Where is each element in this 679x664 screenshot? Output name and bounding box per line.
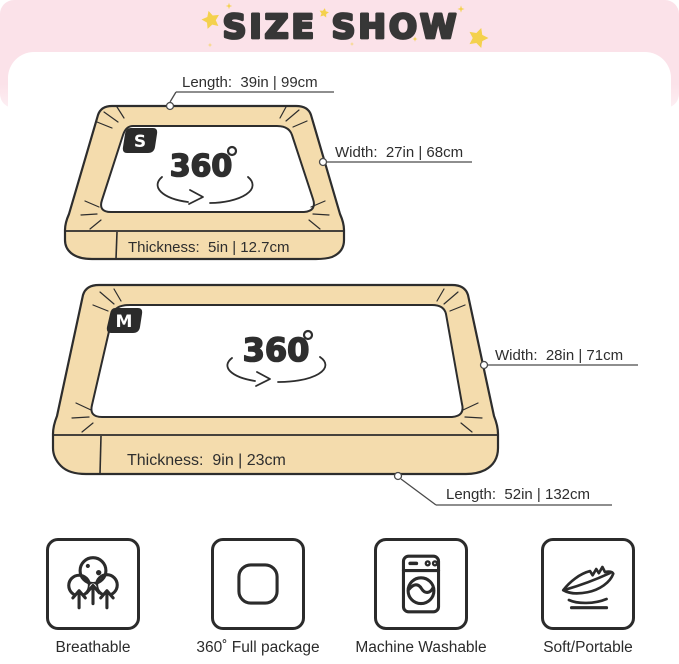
thickness-label-medium: Thickness: 9in | 23cm (127, 452, 286, 469)
bed-medium-seam (100, 436, 101, 474)
machine-washable-icon (388, 551, 454, 617)
star-icon (200, 8, 222, 29)
feature-row: Breathable 360˚ Full package (0, 538, 679, 664)
length-label-small: Length: 39in | 99cm (182, 74, 318, 91)
feature-machine-washable: Machine Washable (336, 538, 506, 657)
size-m-badge: M (107, 308, 142, 333)
feature-box (541, 538, 635, 630)
header: SIZE SHOW (0, 0, 679, 58)
feature-box (211, 538, 305, 630)
feature-box (46, 538, 140, 630)
bed-small: S 360 Length: 39in | 99cm (65, 74, 472, 259)
rotation-360-label: 360 (243, 331, 310, 369)
feature-soft-portable: Soft/Portable (503, 538, 673, 657)
full-package-icon (225, 551, 291, 617)
feature-label: Soft/Portable (543, 639, 633, 657)
feature-full-package: 360˚ Full package (173, 538, 343, 657)
size-show-infographic: SIZE SHOW S 360 (0, 0, 679, 664)
bed-small-seam (116, 232, 117, 259)
badge-letter: M (116, 312, 133, 332)
feather-icon (555, 551, 621, 617)
breathable-icon (60, 551, 126, 617)
bed-medium: M 360 Width: 28in | 71cm Thickness: 9in … (53, 285, 638, 505)
leader-dot (395, 473, 402, 480)
rotation-360-label: 360 (170, 149, 233, 184)
badge-letter: S (134, 132, 146, 152)
star-icon (208, 43, 213, 48)
width-label-small: Width: 27in | 68cm (335, 144, 463, 161)
feature-label: Machine Washable (355, 639, 486, 657)
width-label-medium: Width: 28in | 71cm (495, 347, 623, 364)
page-title: SIZE SHOW (223, 7, 460, 46)
leader-dot (167, 103, 174, 110)
feature-breathable: Breathable (8, 538, 178, 657)
star-icon (466, 25, 491, 49)
leader-dot (481, 362, 488, 369)
feature-label: 360˚ Full package (196, 639, 319, 657)
thickness-label-small: Thickness: 5in | 12.7cm (128, 239, 289, 256)
leader-dot (320, 159, 327, 166)
size-diagram: S 360 Length: 39in | 99cm (0, 0, 679, 530)
feature-box (374, 538, 468, 630)
length-leader-small (170, 92, 334, 102)
length-label-medium: Length: 52in | 132cm (446, 486, 590, 503)
feature-label: Breathable (56, 639, 131, 657)
size-s-badge: S (123, 128, 157, 153)
